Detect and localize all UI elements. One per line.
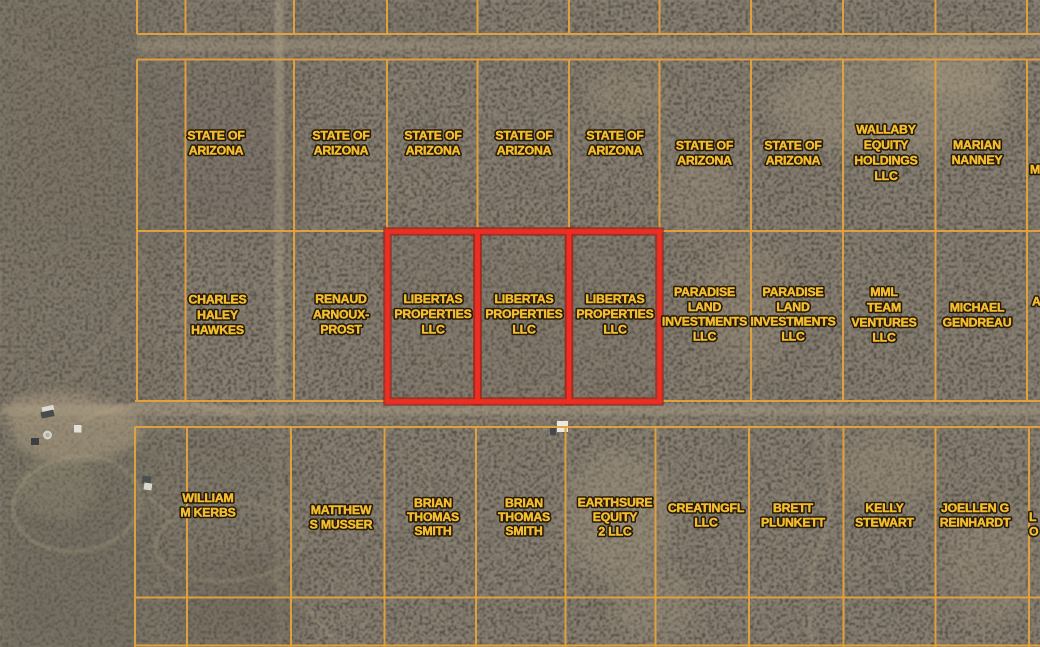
svg-text:INVESTMENTS: INVESTMENTS [750, 315, 835, 329]
svg-text:MATTHEW: MATTHEW [311, 503, 372, 517]
svg-text:ARIZONA: ARIZONA [314, 143, 369, 157]
svg-text:TEAM: TEAM [867, 300, 901, 314]
svg-text:THOMAS: THOMAS [498, 510, 550, 524]
svg-text:MICHAEL: MICHAEL [950, 300, 1005, 314]
svg-text:MARIAN: MARIAN [953, 138, 1001, 152]
svg-text:LAND: LAND [688, 300, 722, 314]
svg-text:2 LLC: 2 LLC [598, 524, 631, 538]
svg-text:SMITH: SMITH [505, 524, 543, 538]
svg-text:STATE OF: STATE OF [676, 139, 734, 153]
svg-text:EQUITY: EQUITY [593, 510, 638, 524]
svg-text:PROST: PROST [320, 323, 362, 337]
svg-text:WILLIAM: WILLIAM [182, 491, 233, 505]
svg-text:ARIZONA: ARIZONA [677, 153, 732, 167]
svg-text:LLC: LLC [603, 322, 627, 336]
svg-text:LLC: LLC [693, 329, 717, 343]
svg-text:LLC: LLC [874, 169, 898, 183]
svg-text:M KERBS: M KERBS [180, 506, 235, 520]
svg-text:WALLABY: WALLABY [856, 123, 915, 137]
svg-text:PROPERTIES: PROPERTIES [576, 307, 653, 321]
svg-text:RENAUD: RENAUD [315, 292, 367, 306]
svg-text:LAND: LAND [776, 300, 810, 314]
svg-text:VENTURES: VENTURES [851, 316, 916, 330]
svg-text:SMITH: SMITH [414, 524, 452, 538]
svg-text:THOMAS: THOMAS [407, 510, 459, 524]
svg-text:BRIAN: BRIAN [414, 496, 452, 510]
svg-text:PARADISE: PARADISE [762, 285, 823, 299]
svg-text:MML: MML [870, 285, 898, 299]
svg-text:HALEY: HALEY [197, 308, 238, 322]
svg-text:PLUNKETT: PLUNKETT [761, 516, 826, 530]
svg-text:STEWART: STEWART [855, 516, 914, 530]
svg-text:STATE OF: STATE OF [586, 129, 644, 143]
svg-text:LIBERTAS: LIBERTAS [495, 292, 554, 306]
svg-text:KELLY: KELLY [865, 501, 903, 515]
svg-text:LLC: LLC [421, 322, 445, 336]
svg-text:LIBERTAS: LIBERTAS [586, 292, 645, 306]
svg-text:LIBERTAS: LIBERTAS [404, 292, 463, 306]
svg-text:ARIZONA: ARIZONA [497, 143, 552, 157]
svg-text:PROPERTIES: PROPERTIES [394, 307, 471, 321]
svg-text:CREATINGFL: CREATINGFL [668, 501, 745, 515]
svg-text:ARIZONA: ARIZONA [766, 153, 821, 167]
svg-text:NANNEY: NANNEY [952, 153, 1003, 167]
svg-text:STATE OF: STATE OF [312, 129, 370, 143]
svg-text:STATE OF: STATE OF [495, 129, 553, 143]
svg-text:EARTHSURE: EARTHSURE [578, 495, 653, 509]
svg-text:STATE OF: STATE OF [404, 129, 462, 143]
svg-text:S MUSSER: S MUSSER [310, 518, 373, 532]
svg-text:STATE OF: STATE OF [187, 129, 245, 143]
svg-text:GENDREAU: GENDREAU [943, 316, 1012, 330]
svg-text:REINHARDT: REINHARDT [940, 516, 1011, 530]
svg-text:EQUITY: EQUITY [864, 138, 909, 152]
svg-text:PARADISE: PARADISE [674, 285, 735, 299]
svg-text:BRIAN: BRIAN [505, 496, 543, 510]
svg-text:HOLDINGS: HOLDINGS [854, 154, 917, 168]
svg-text:LLC: LLC [781, 329, 805, 343]
svg-text:HAWKES: HAWKES [191, 323, 244, 337]
svg-text:MA: MA [1030, 162, 1040, 176]
svg-text:PROPERTIES: PROPERTIES [485, 307, 562, 321]
svg-text:L: L [1029, 510, 1037, 524]
svg-text:ARIZONA: ARIZONA [588, 143, 643, 157]
svg-text:BRETT: BRETT [773, 501, 814, 515]
svg-text:INVESTMENTS: INVESTMENTS [662, 315, 747, 329]
svg-text:LLC: LLC [872, 331, 896, 345]
svg-text:STATE OF: STATE OF [764, 139, 822, 153]
svg-text:ARIZONA: ARIZONA [406, 143, 461, 157]
svg-text:LLC: LLC [512, 322, 536, 336]
svg-text:CHARLES: CHARLES [188, 293, 246, 307]
svg-text:ARNOUX-: ARNOUX- [313, 307, 369, 321]
svg-text:JOELLEN G: JOELLEN G [941, 501, 1009, 515]
svg-text:ARIZONA: ARIZONA [189, 143, 244, 157]
svg-text:A: A [1032, 294, 1040, 308]
svg-text:O: O [1029, 525, 1039, 539]
svg-text:LLC: LLC [694, 516, 718, 530]
